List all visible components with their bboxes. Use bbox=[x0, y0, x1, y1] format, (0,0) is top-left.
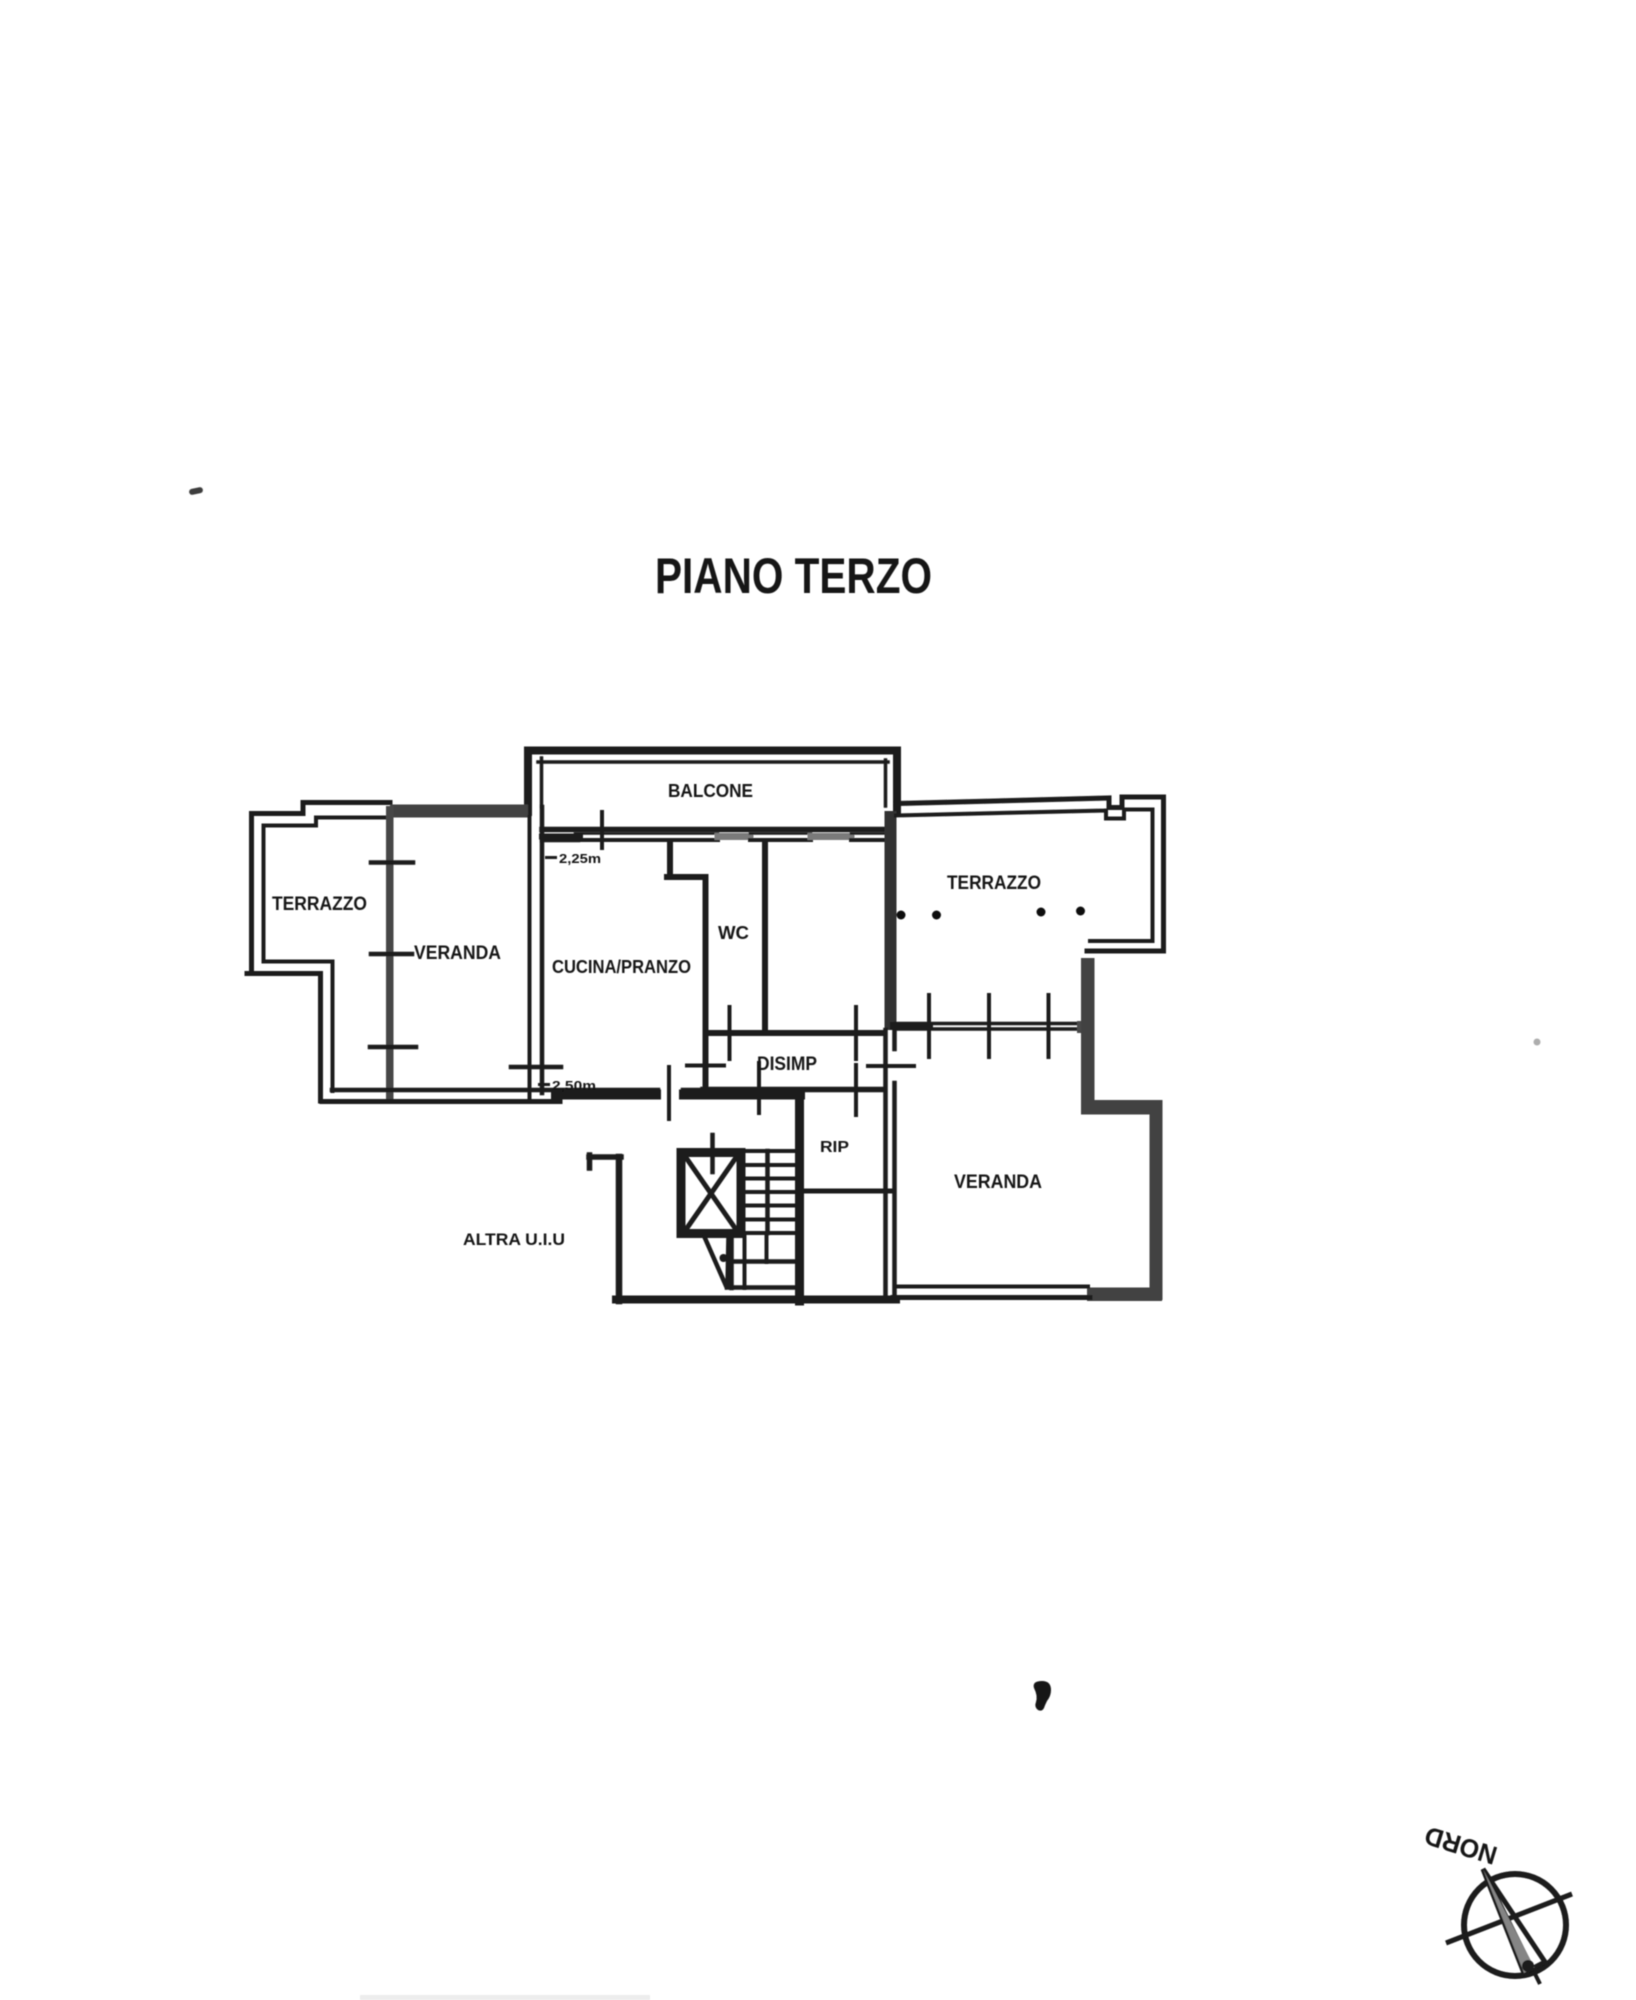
svg-text:DISIMP: DISIMP bbox=[757, 1054, 817, 1075]
svg-text:VERANDA: VERANDA bbox=[954, 1172, 1042, 1193]
svg-text:2,50m: 2,50m bbox=[552, 1078, 596, 1093]
svg-text:TERRAZZO: TERRAZZO bbox=[272, 894, 367, 915]
svg-text:VERANDA: VERANDA bbox=[414, 943, 501, 964]
svg-text:PIANO TERZO: PIANO TERZO bbox=[655, 548, 932, 604]
svg-text:WC: WC bbox=[718, 922, 749, 943]
svg-text:ALTRA U.I.U: ALTRA U.I.U bbox=[463, 1231, 565, 1249]
svg-text:TERRAZZO: TERRAZZO bbox=[947, 873, 1041, 894]
svg-text:RIP: RIP bbox=[820, 1139, 849, 1156]
svg-text:CUCINA/PRANZO: CUCINA/PRANZO bbox=[552, 956, 691, 977]
svg-text:2,25m: 2,25m bbox=[559, 851, 601, 866]
svg-text:BALCONE: BALCONE bbox=[668, 780, 753, 801]
